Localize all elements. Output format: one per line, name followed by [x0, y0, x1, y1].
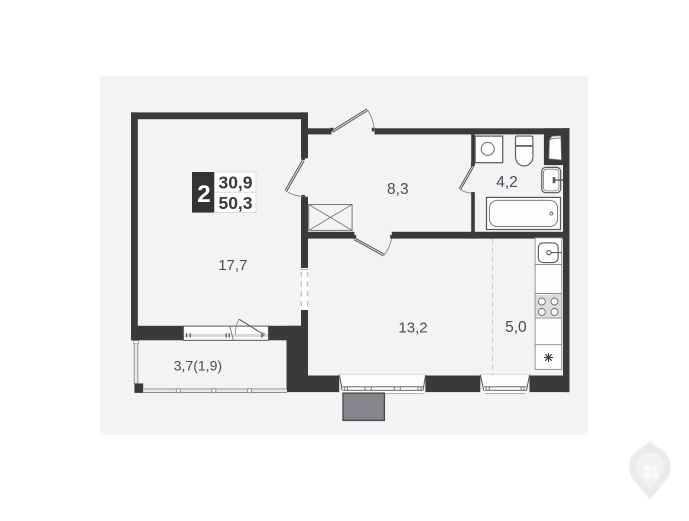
svg-text:5,0: 5,0: [505, 319, 527, 336]
svg-text:30,9: 30,9: [218, 173, 252, 193]
svg-text:2: 2: [197, 181, 211, 208]
svg-text:3,7(1,9): 3,7(1,9): [174, 358, 222, 374]
svg-text:13,2: 13,2: [398, 320, 427, 337]
svg-text:4,2: 4,2: [496, 174, 518, 191]
svg-text:17,7: 17,7: [218, 257, 247, 274]
svg-text:8,3: 8,3: [387, 181, 409, 198]
svg-text:50,3: 50,3: [218, 193, 252, 213]
